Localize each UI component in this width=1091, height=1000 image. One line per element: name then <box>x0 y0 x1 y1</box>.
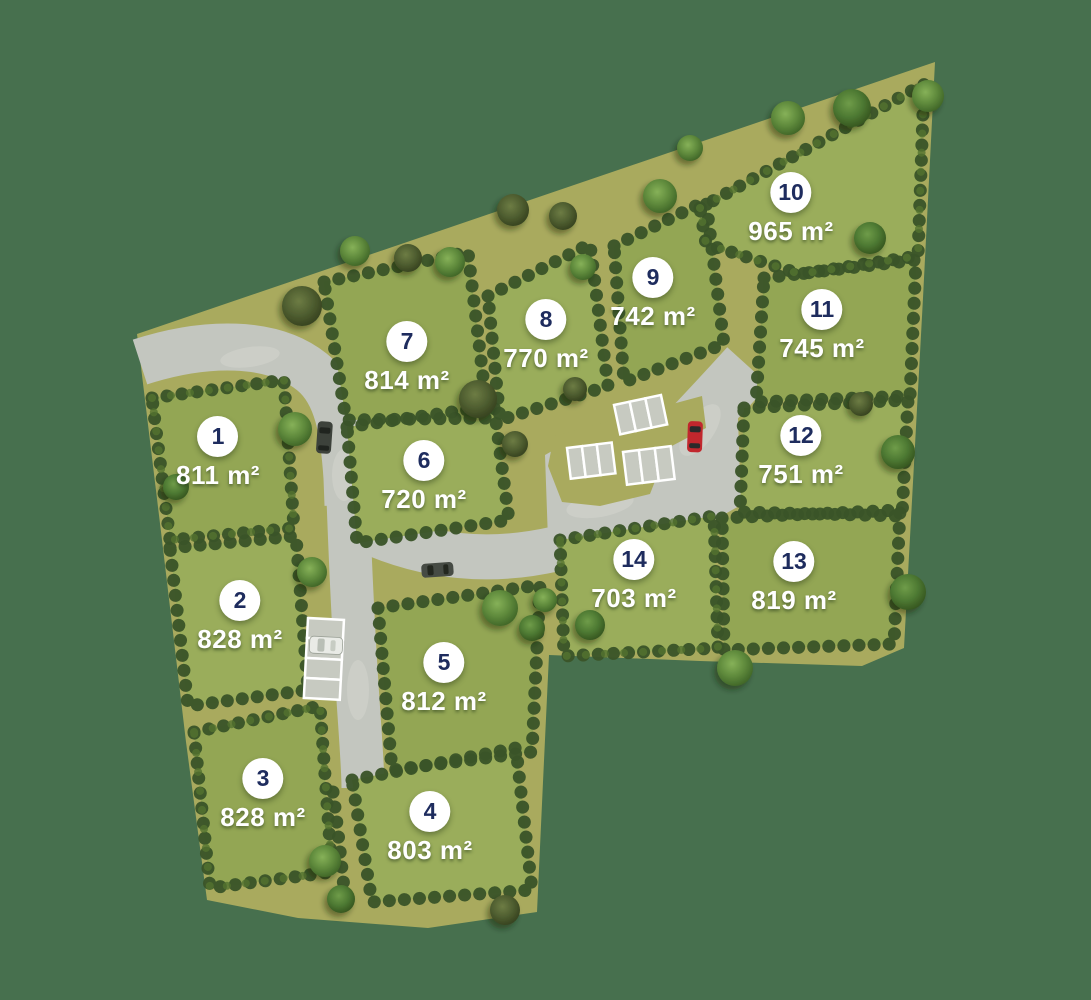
plot-region-1[interactable] <box>152 380 294 540</box>
plot-9-badge[interactable]: 9 <box>632 257 673 298</box>
plot-3-badge[interactable]: 3 <box>242 758 283 799</box>
plot-region-2[interactable] <box>170 536 308 706</box>
plot-14-badge[interactable]: 14 <box>613 539 654 580</box>
plot-11-badge[interactable]: 11 <box>801 289 842 330</box>
plot-13-badge[interactable]: 13 <box>773 541 814 582</box>
car-dark-center <box>421 562 454 578</box>
parking-spaces-west <box>304 618 344 700</box>
plot-2-badge[interactable]: 2 <box>219 580 260 621</box>
plot-8-badge[interactable]: 8 <box>525 299 566 340</box>
plot-12-badge[interactable]: 12 <box>780 415 821 456</box>
plot-4-badge[interactable]: 4 <box>409 791 450 832</box>
car-dark-north <box>316 421 333 454</box>
plot-7-badge[interactable]: 7 <box>386 321 427 362</box>
plot-5-badge[interactable]: 5 <box>423 642 464 683</box>
site-map-svg <box>0 0 1091 1000</box>
car-red <box>687 421 703 453</box>
plot-6-badge[interactable]: 6 <box>403 440 444 481</box>
car-white-parked <box>309 636 343 655</box>
plot-10-badge[interactable]: 10 <box>770 172 811 213</box>
plot-map: 1 811 m² 2 828 m² 3 828 m² 4 803 m² 5 81… <box>0 0 1091 1000</box>
plot-region-13[interactable] <box>722 510 900 650</box>
